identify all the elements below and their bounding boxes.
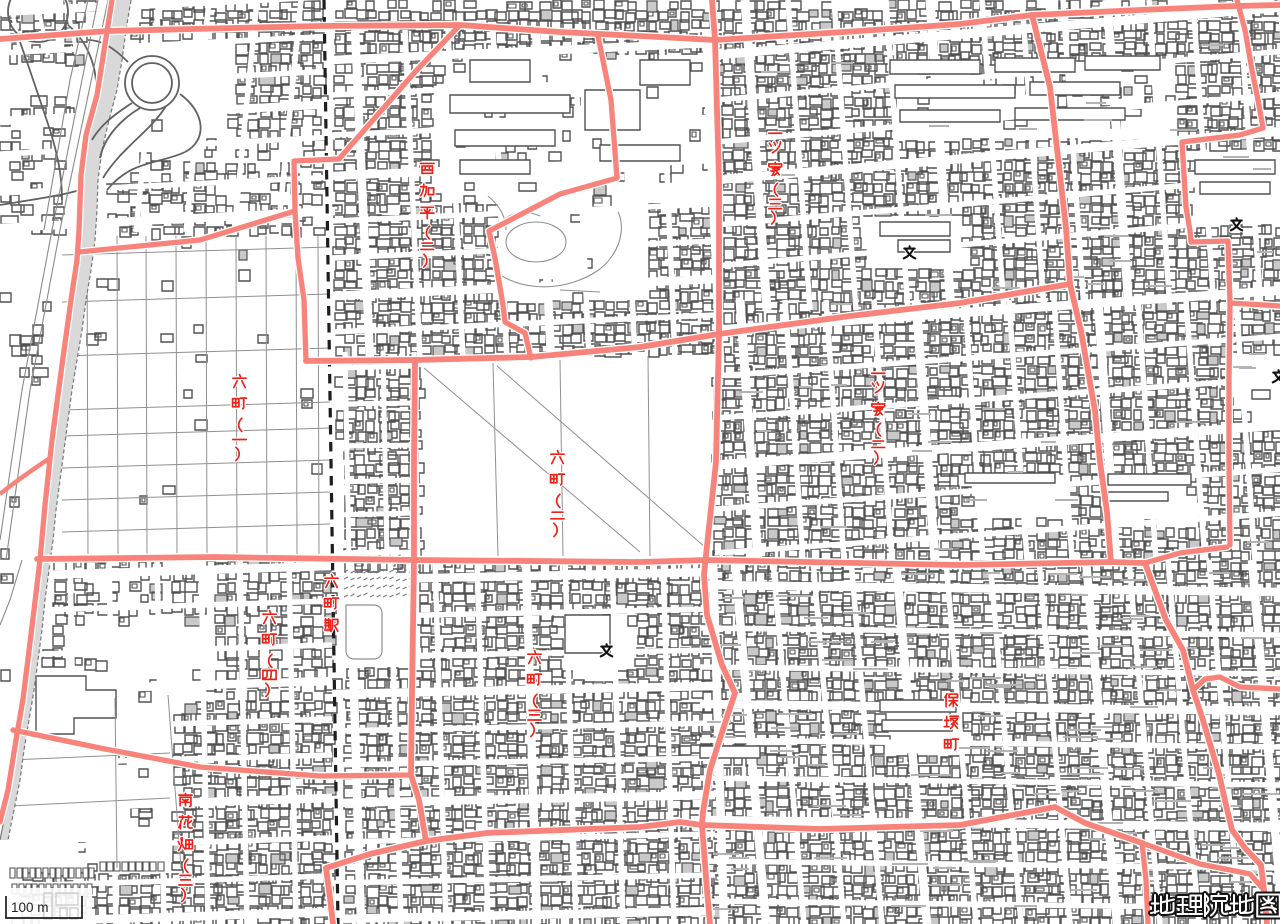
svg-text:100 m: 100 m [11,900,49,915]
